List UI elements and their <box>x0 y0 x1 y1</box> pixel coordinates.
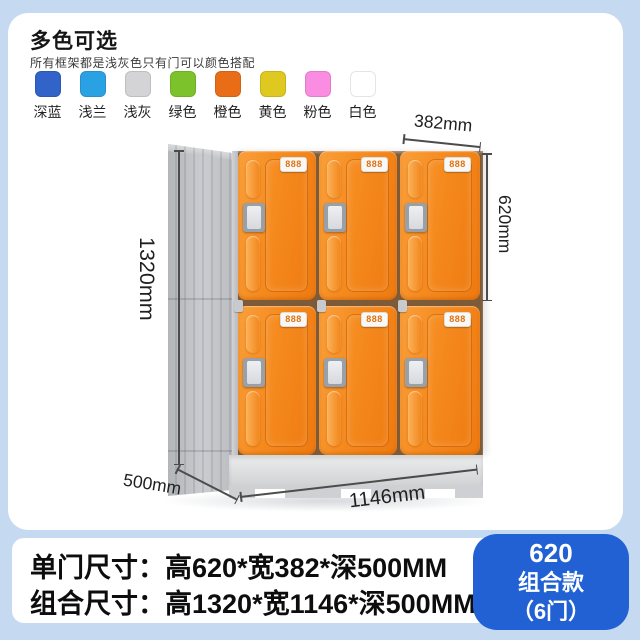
door-hinge-strip <box>327 236 341 291</box>
swatch-label: 深蓝 <box>34 102 62 122</box>
color-swatch-row: 深蓝 浅兰 浅灰 绿色 橙色 黄色 粉色 白色 <box>25 71 385 122</box>
door-handle-face <box>409 361 423 384</box>
door-handle <box>243 203 265 232</box>
locker-door: 888 <box>319 306 397 455</box>
door-grid: 888 888 888 <box>238 151 483 455</box>
door-hinge-strip <box>408 315 422 353</box>
door-panel-outline <box>346 314 389 447</box>
door-hinge-strip <box>408 160 422 198</box>
locker-door: 888 <box>238 151 316 300</box>
frame-clip <box>317 300 326 312</box>
door-row-top: 888 888 888 <box>238 151 483 300</box>
door-hinge-strip <box>327 391 341 446</box>
swatch-label: 粉色 <box>304 102 332 122</box>
door-handle-face <box>247 206 261 229</box>
swatch-pink: 粉色 <box>295 71 340 122</box>
door-handle <box>324 358 346 387</box>
swatch-color-chip <box>80 71 106 97</box>
spec-combined: 组合尺寸：高1320*宽1146*深500MM <box>30 582 476 621</box>
door-handle <box>405 203 427 232</box>
badge-door-count: （6门） <box>512 597 590 626</box>
swatch-label: 白色 <box>349 102 377 122</box>
door-panel-outline <box>265 314 308 447</box>
door-handle <box>243 358 265 387</box>
door-number-sticker: 888 <box>280 157 307 172</box>
door-number-sticker: 888 <box>444 312 471 327</box>
door-hinge-strip <box>246 236 260 291</box>
swatch-white: 白色 <box>340 71 385 122</box>
dimension-label-total-height: 1320mm <box>134 237 159 321</box>
door-handle-face <box>409 206 423 229</box>
door-hinge-strip <box>246 160 260 198</box>
swatch-color-chip <box>35 71 61 97</box>
locker-door: 888 <box>400 306 480 455</box>
door-number-sticker: 888 <box>361 312 388 327</box>
door-number-sticker: 888 <box>444 157 471 172</box>
door-number-sticker: 888 <box>280 312 307 327</box>
door-hinge-strip <box>327 160 341 198</box>
locker-illustration: 888 888 888 <box>165 138 487 518</box>
badge-model-number: 620 <box>529 538 572 568</box>
door-handle-face <box>328 361 342 384</box>
locker-door: 888 <box>238 306 316 455</box>
swatch-label: 绿色 <box>169 102 197 122</box>
door-hinge-strip <box>408 236 422 291</box>
swatch-deep-blue: 深蓝 <box>25 71 70 122</box>
swatch-label: 橙色 <box>214 102 242 122</box>
door-handle <box>405 358 427 387</box>
spec-bar: 单门尺寸：高620*宽382*深500MM 组合尺寸：高1320*宽1146*深… <box>12 538 512 623</box>
dimension-cap <box>482 153 493 155</box>
swatch-color-chip <box>350 71 376 97</box>
dimension-line-total-height <box>178 150 180 465</box>
door-hinge-strip <box>327 315 341 353</box>
swatch-color-chip <box>125 71 151 97</box>
door-number-sticker: 888 <box>361 157 388 172</box>
locker-door: 888 <box>319 151 397 300</box>
color-options-subtitle: 所有框架都是浅灰色只有门可以颜色搭配 <box>30 54 255 71</box>
door-panel-outline <box>346 159 389 292</box>
model-badge: 620 组合款 （6门） <box>473 534 629 630</box>
door-hinge-strip <box>408 391 422 446</box>
swatch-color-chip <box>170 71 196 97</box>
door-panel-outline <box>265 159 308 292</box>
locker-door: 888 <box>400 151 480 300</box>
door-handle <box>324 203 346 232</box>
swatch-color-chip <box>260 71 286 97</box>
color-options-title: 多色可选 <box>30 25 118 55</box>
dimension-line-door-height <box>486 153 488 301</box>
door-handle-face <box>328 206 342 229</box>
door-panel-outline <box>427 314 472 447</box>
dimension-cap <box>482 300 493 302</box>
frame-clip <box>234 300 243 312</box>
swatch-color-chip <box>305 71 331 97</box>
swatch-green: 绿色 <box>160 71 205 122</box>
door-hinge-strip <box>246 315 260 353</box>
swatch-light-blue: 浅兰 <box>70 71 115 122</box>
swatch-label: 浅灰 <box>124 102 152 122</box>
swatch-yellow: 黄色 <box>250 71 295 122</box>
swatch-light-gray: 浅灰 <box>115 71 160 122</box>
door-handle-face <box>247 361 261 384</box>
door-panel-outline <box>427 159 472 292</box>
swatch-orange: 橙色 <box>205 71 250 122</box>
door-hinge-strip <box>246 391 260 446</box>
swatch-label: 黄色 <box>259 102 287 122</box>
locker-base <box>229 455 483 485</box>
dimension-label-door-height: 620mm <box>494 195 515 253</box>
locker-front-face: 888 888 888 <box>232 151 483 455</box>
badge-type: 组合款 <box>518 568 584 597</box>
door-row-bottom: 888 888 888 <box>238 306 483 455</box>
base-notch <box>425 489 455 498</box>
frame-clip <box>398 300 407 312</box>
spec-single-door: 单门尺寸：高620*宽382*深500MM <box>30 546 447 585</box>
swatch-color-chip <box>215 71 241 97</box>
dimension-cap <box>174 150 185 152</box>
swatch-label: 浅兰 <box>79 102 107 122</box>
